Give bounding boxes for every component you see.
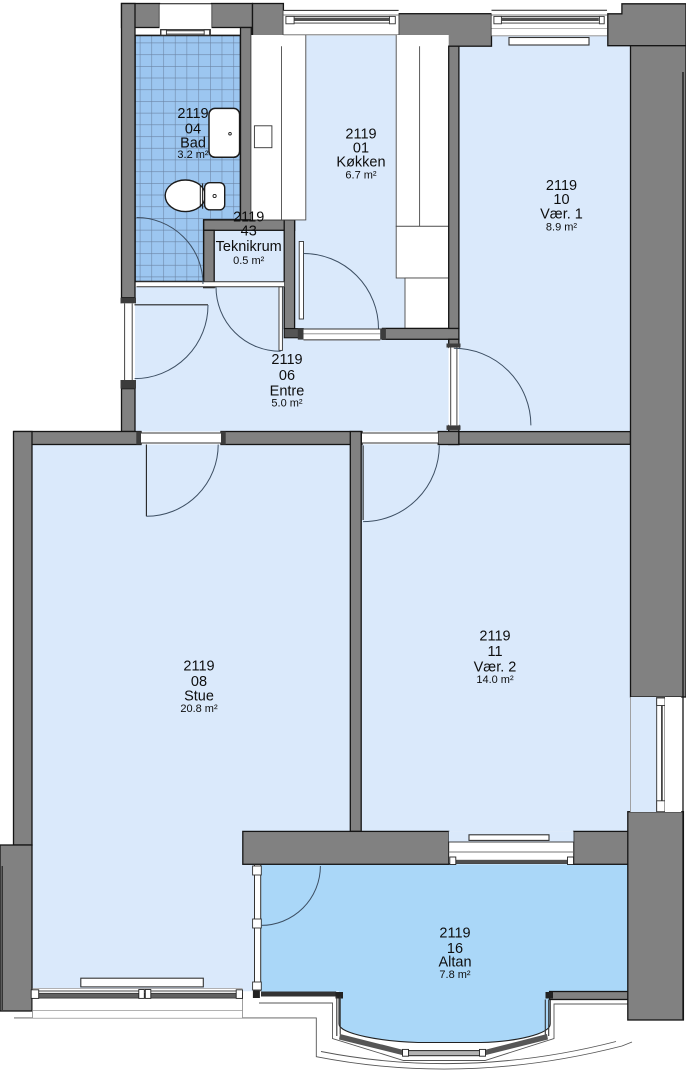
svg-text:43: 43	[241, 224, 257, 240]
svg-text:3.2 m²: 3.2 m²	[177, 149, 209, 161]
svg-text:2119: 2119	[271, 352, 302, 368]
svg-text:2119: 2119	[183, 659, 214, 675]
svg-text:Vær. 1: Vær. 1	[540, 207, 583, 223]
svg-text:Køkken: Køkken	[336, 155, 385, 171]
svg-text:06: 06	[279, 368, 295, 384]
svg-text:8.9 m²: 8.9 m²	[546, 222, 578, 234]
svg-text:2119: 2119	[177, 106, 208, 122]
svg-text:0.5 m²: 0.5 m²	[233, 255, 265, 267]
svg-text:11: 11	[487, 644, 502, 660]
svg-text:5.0 m²: 5.0 m²	[271, 398, 303, 410]
svg-text:14.0 m²: 14.0 m²	[476, 674, 514, 686]
svg-text:2119: 2119	[439, 926, 470, 942]
svg-text:2119: 2119	[479, 629, 510, 645]
svg-text:Teknikrum: Teknikrum	[216, 239, 282, 255]
svg-text:20.8 m²: 20.8 m²	[180, 703, 218, 715]
svg-text:6.7 m²: 6.7 m²	[345, 170, 377, 182]
svg-text:7.8 m²: 7.8 m²	[439, 969, 471, 981]
